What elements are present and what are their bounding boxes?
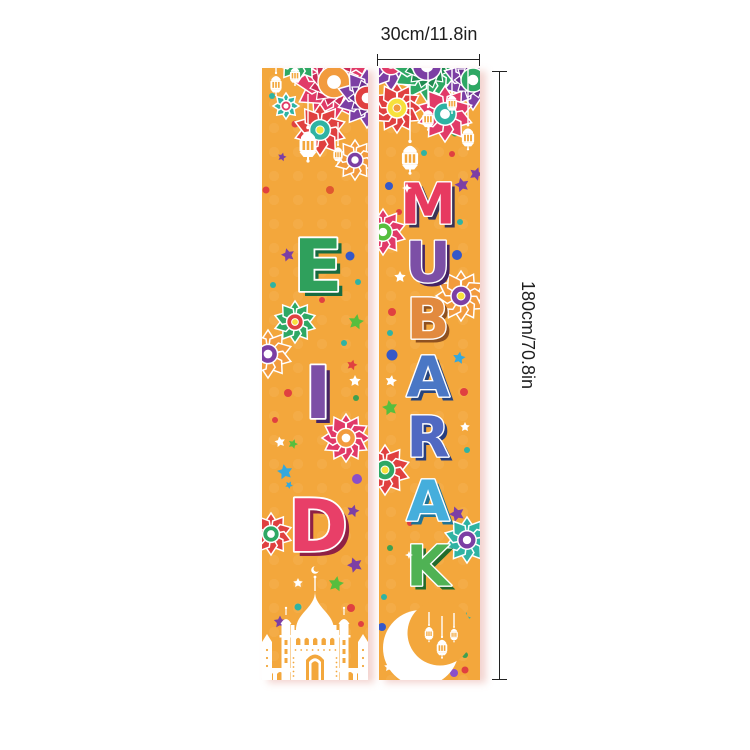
star-icon: [329, 576, 344, 591]
dot-icon: [421, 150, 427, 156]
star-icon: [277, 464, 292, 479]
star-icon: [349, 314, 364, 329]
dot-icon: [295, 604, 302, 611]
svg-text:K: K: [406, 535, 452, 600]
banner-art: EEIIDD: [262, 68, 368, 680]
width-dimension-label: 30cm/11.8in: [353, 24, 505, 45]
svg-text:U: U: [405, 231, 450, 296]
banner-letter: AA: [406, 346, 454, 415]
product-image: 30cm/11.8in EEIIDD MMUUBBAARRAAKK 180cm/…: [0, 0, 750, 750]
banner-letter: II: [305, 351, 337, 440]
banner-letter: KK: [406, 535, 456, 604]
height-dimension-label: 180cm/70.8in: [517, 281, 538, 389]
svg-text:R: R: [406, 406, 449, 471]
star-icon: [386, 375, 397, 386]
eid-banner: EEIIDD: [262, 68, 368, 680]
svg-text:I: I: [305, 351, 332, 435]
dot-icon: [270, 282, 276, 288]
dot-icon: [347, 604, 355, 612]
dot-icon: [387, 330, 393, 336]
banner-letter: RR: [406, 406, 453, 475]
dot-icon: [385, 182, 393, 190]
dot-icon: [355, 279, 361, 285]
dot-icon: [388, 308, 396, 316]
dot-icon: [284, 389, 292, 397]
star-icon: [394, 271, 405, 282]
dot-icon: [353, 395, 359, 401]
svg-text:A: A: [406, 470, 450, 535]
svg-text:D: D: [288, 484, 348, 568]
mubarak-banner: MMUUBBAARRAAKK: [379, 68, 480, 680]
banner-art: MMUUBBAARRAAKK: [379, 68, 480, 680]
crescent-moon-icon: [383, 601, 473, 681]
star-icon: [453, 352, 465, 364]
dot-icon: [460, 388, 468, 396]
dot-icon: [464, 447, 470, 453]
star-icon: [281, 248, 294, 261]
star-icon: [293, 578, 303, 587]
star-icon: [347, 360, 357, 370]
dot-icon: [352, 474, 362, 484]
width-dimension-tick-left: [377, 54, 378, 66]
star-icon: [460, 422, 470, 431]
height-dimension-tick-bottom: [492, 679, 507, 680]
banner-letter: AA: [406, 470, 454, 539]
dot-icon: [387, 350, 398, 361]
dot-icon: [326, 186, 334, 194]
svg-text:B: B: [407, 288, 450, 353]
dot-icon: [358, 621, 364, 627]
dot-icon: [269, 93, 275, 99]
svg-text:E: E: [293, 224, 342, 308]
dot-icon: [341, 340, 347, 346]
dot-icon: [387, 545, 393, 551]
star-icon: [382, 400, 397, 415]
lantern-icon: [270, 68, 281, 96]
dot-icon: [381, 594, 387, 600]
dot-icon: [449, 151, 455, 157]
svg-text:A: A: [406, 346, 450, 411]
banner-letter: EE: [293, 224, 347, 313]
height-dimension-tick-top: [492, 71, 507, 72]
height-dimension-line: [499, 71, 500, 680]
width-dimension-tick-right: [479, 54, 480, 66]
flower-icon: [273, 93, 299, 119]
star-icon: [470, 167, 480, 180]
star-icon: [278, 153, 286, 162]
star-icon: [349, 375, 360, 386]
star-icon: [289, 439, 298, 449]
dot-icon: [379, 623, 386, 631]
svg-text:M: M: [400, 173, 456, 238]
dot-icon: [263, 187, 270, 194]
star-icon: [275, 437, 285, 447]
dot-icon: [272, 417, 278, 423]
dot-icon: [462, 667, 469, 674]
banner-letter: DD: [288, 484, 353, 573]
width-dimension-line: [378, 59, 480, 60]
